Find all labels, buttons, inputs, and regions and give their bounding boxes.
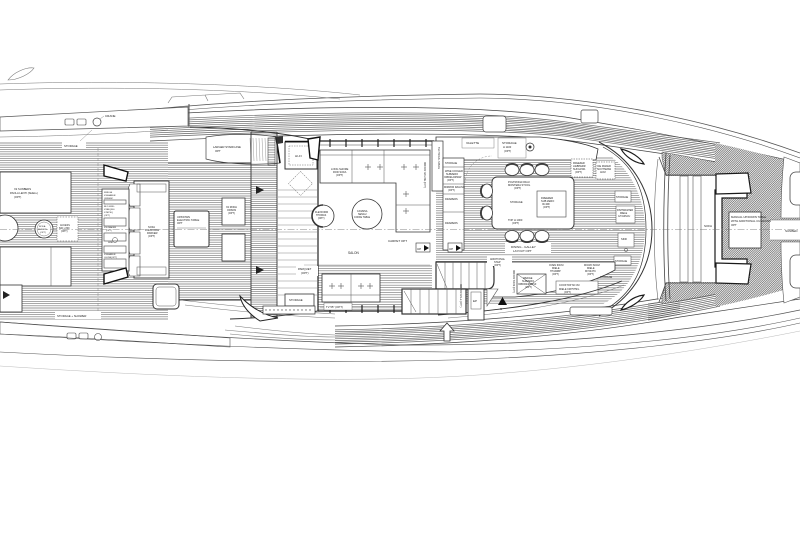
svg-text:CARPET OPT: CARPET OPT	[388, 239, 407, 243]
svg-text:ICBBQ300: ICBBQ300	[104, 209, 115, 211]
svg-text:(OPT): (OPT)	[336, 173, 343, 177]
svg-text:STORAGE: STORAGE	[600, 276, 613, 279]
svg-text:COFFE TABLE: COFFE TABLE	[354, 216, 371, 219]
svg-text:EP: EP	[473, 299, 477, 303]
svg-text:(OPT): (OPT)	[587, 273, 594, 276]
svg-text:(OPT): (OPT)	[318, 217, 325, 220]
svg-text:BL2 GRILL: BL2 GRILL	[104, 206, 116, 208]
svg-text:ICEMAKER: ICEMAKER	[104, 194, 116, 197]
svg-text:(OPT): (OPT)	[61, 230, 68, 233]
svg-text:(OPT): (OPT)	[494, 264, 501, 267]
svg-text:OPT: OPT	[177, 221, 183, 225]
svg-text:(OPT): (OPT)	[575, 171, 582, 174]
svg-text:STEPSQ: STEPSQ	[104, 212, 113, 214]
svg-text:ACM: ACM	[600, 171, 606, 174]
svg-text:DRAWERS: DRAWERS	[445, 198, 458, 201]
svg-text:DRAWERS: DRAWERS	[445, 222, 458, 225]
svg-text:(FR90RC: (FR90RC	[104, 198, 114, 200]
svg-text:(OPT): (OPT)	[448, 189, 455, 192]
svg-text:FRIDGE: FRIDGE	[104, 192, 113, 194]
svg-text:(OPT): (OPT)	[525, 286, 532, 289]
svg-text:COOKTOP 60 CM: COOKTOP 60 CM	[559, 284, 579, 287]
svg-text:(OPT): (OPT)	[543, 205, 550, 209]
svg-text:HI-FI: HI-FI	[295, 154, 302, 158]
svg-text:UP: UP	[449, 247, 453, 251]
svg-text:S: S	[500, 307, 502, 311]
svg-text:ICEMAKER: ICEMAKER	[104, 253, 116, 256]
svg-text:MIRROR/AISLE (OPT): MIRROR/AISLE (OPT)	[459, 284, 462, 308]
svg-text:ICE MAKER: ICE MAKER	[104, 226, 116, 229]
svg-text:STORAGE: STORAGE	[289, 298, 303, 302]
svg-text:STORAGE: STORAGE	[445, 162, 458, 165]
svg-text:CRANE: CRANE	[105, 114, 116, 118]
svg-text:H 1100: H 1100	[503, 145, 512, 149]
svg-text:(OPT): (OPT)	[552, 273, 559, 276]
svg-text:PAOLA LENTI (SHELL): PAOLA LENTI (SHELL)	[10, 191, 38, 195]
svg-text:(OPT): (OPT)	[564, 291, 571, 294]
svg-text:MIRROR RAILING (OPT): MIRROR RAILING (OPT)	[423, 162, 426, 188]
svg-text:SINK: SINK	[621, 237, 627, 241]
svg-text:OPT: OPT	[731, 223, 737, 227]
svg-text:(OPT): (OPT)	[512, 221, 519, 225]
svg-text:X2 SUNBEDS: X2 SUNBEDS	[14, 187, 31, 191]
svg-text:(OPT): (OPT)	[228, 212, 235, 215]
svg-text:TV 55" (OPT): TV 55" (OPT)	[326, 305, 343, 309]
svg-text:(OPT): (OPT)	[447, 179, 454, 182]
svg-text:STORAGE: STORAGE	[64, 144, 78, 148]
svg-text:(OPT): (OPT)	[40, 232, 46, 234]
svg-text:(OPT): (OPT)	[14, 195, 21, 199]
svg-text:STORAGE + SHOWER: STORAGE + SHOWER	[57, 314, 86, 318]
svg-text:TECHNICAL SPACE: TECHNICAL SPACE	[437, 147, 440, 169]
svg-text:MIRROR 60CM (OPT): MIRROR 60CM (OPT)	[512, 270, 514, 293]
svg-text:VALETTE: VALETTE	[466, 141, 479, 145]
svg-text:(OPT): (OPT)	[106, 230, 112, 232]
svg-text:UP: UP	[417, 247, 421, 251]
svg-text:STORAGE: STORAGE	[616, 196, 629, 199]
svg-text:STORAGE: STORAGE	[615, 260, 628, 263]
svg-text:LAYOUT OPT: LAYOUT OPT	[513, 249, 532, 253]
svg-text:(OPT): (OPT)	[148, 234, 155, 238]
svg-text:WITH ADDITIONAL CUSHIONS: WITH ADDITIONAL CUSHIONS	[731, 219, 771, 223]
svg-text:OPT: OPT	[215, 149, 221, 153]
svg-text:SINK: SINK	[108, 242, 114, 244]
svg-text:SALON: SALON	[348, 251, 360, 255]
svg-text:STORAGE: STORAGE	[502, 141, 517, 145]
svg-text:(OPT): (OPT)	[104, 215, 110, 217]
svg-text:(OPT): (OPT)	[301, 271, 309, 275]
svg-text:STORAGE: STORAGE	[510, 200, 523, 204]
svg-text:SOFA: SOFA	[704, 224, 712, 228]
svg-text:G7310SCU: G7310SCU	[618, 215, 630, 218]
svg-text:(OPT): (OPT)	[514, 186, 521, 190]
svg-text:(OPT): (OPT)	[504, 149, 511, 153]
svg-text:RODA: RODA	[39, 225, 46, 228]
